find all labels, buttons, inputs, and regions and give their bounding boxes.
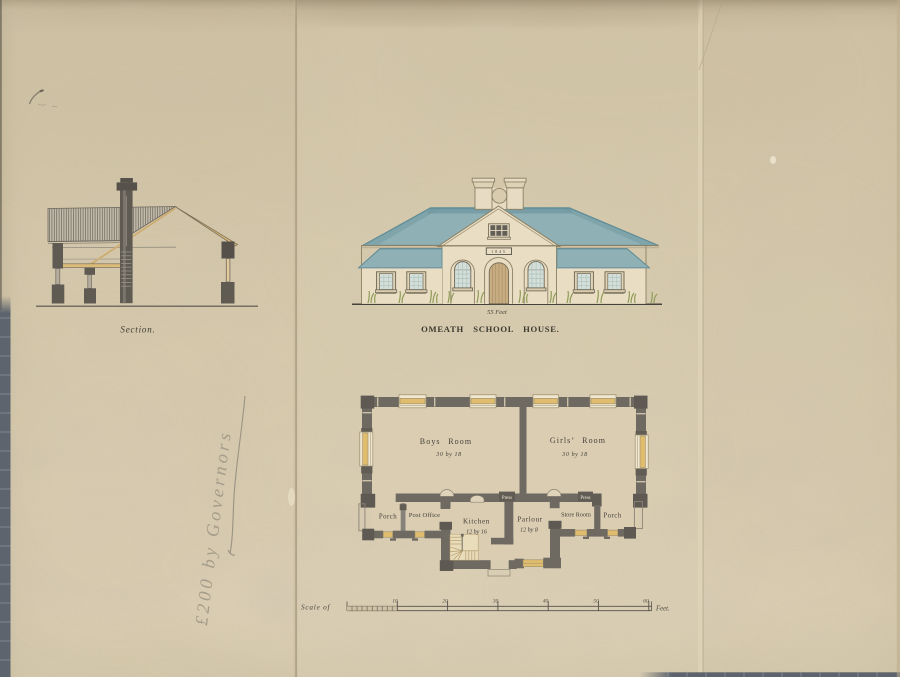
svg-text:1845: 1845	[491, 249, 507, 254]
svg-text:Boys Room: Boys Room	[420, 437, 472, 446]
svg-text:60: 60	[643, 599, 649, 605]
svg-text:10: 10	[392, 599, 398, 605]
svg-text:30: 30	[492, 599, 499, 605]
svg-text:12 by 16: 12 by 16	[466, 530, 487, 536]
svg-text:20: 20	[442, 599, 448, 605]
svg-text:Parlour: Parlour	[517, 516, 542, 524]
svg-text:50: 50	[593, 599, 599, 605]
svg-text:40: 40	[543, 599, 549, 605]
svg-text:Porch: Porch	[603, 513, 621, 520]
svg-text:Press: Press	[502, 496, 512, 501]
svg-text:12 by 8: 12 by 8	[520, 528, 538, 534]
svg-text:Store Room: Store Room	[561, 512, 591, 519]
svg-text:55 Feet: 55 Feet	[487, 309, 507, 316]
svg-text:Kitchen: Kitchen	[463, 518, 490, 526]
svg-text:Feet.: Feet.	[655, 606, 670, 613]
svg-text:30 by 18: 30 by 18	[435, 452, 461, 458]
svg-text:Section.: Section.	[120, 325, 155, 335]
svg-text:Scale of: Scale of	[301, 604, 331, 612]
svg-text:Press: Press	[580, 496, 590, 501]
svg-text:30 by 18: 30 by 18	[561, 452, 587, 458]
svg-text:OMEATH SCHOOL HOUSE.: OMEATH SCHOOL HOUSE.	[421, 324, 559, 334]
svg-text:Porch: Porch	[379, 514, 397, 521]
svg-text:Girls’ Room: Girls’ Room	[550, 436, 606, 445]
svg-text:Post Office: Post Office	[409, 512, 441, 519]
